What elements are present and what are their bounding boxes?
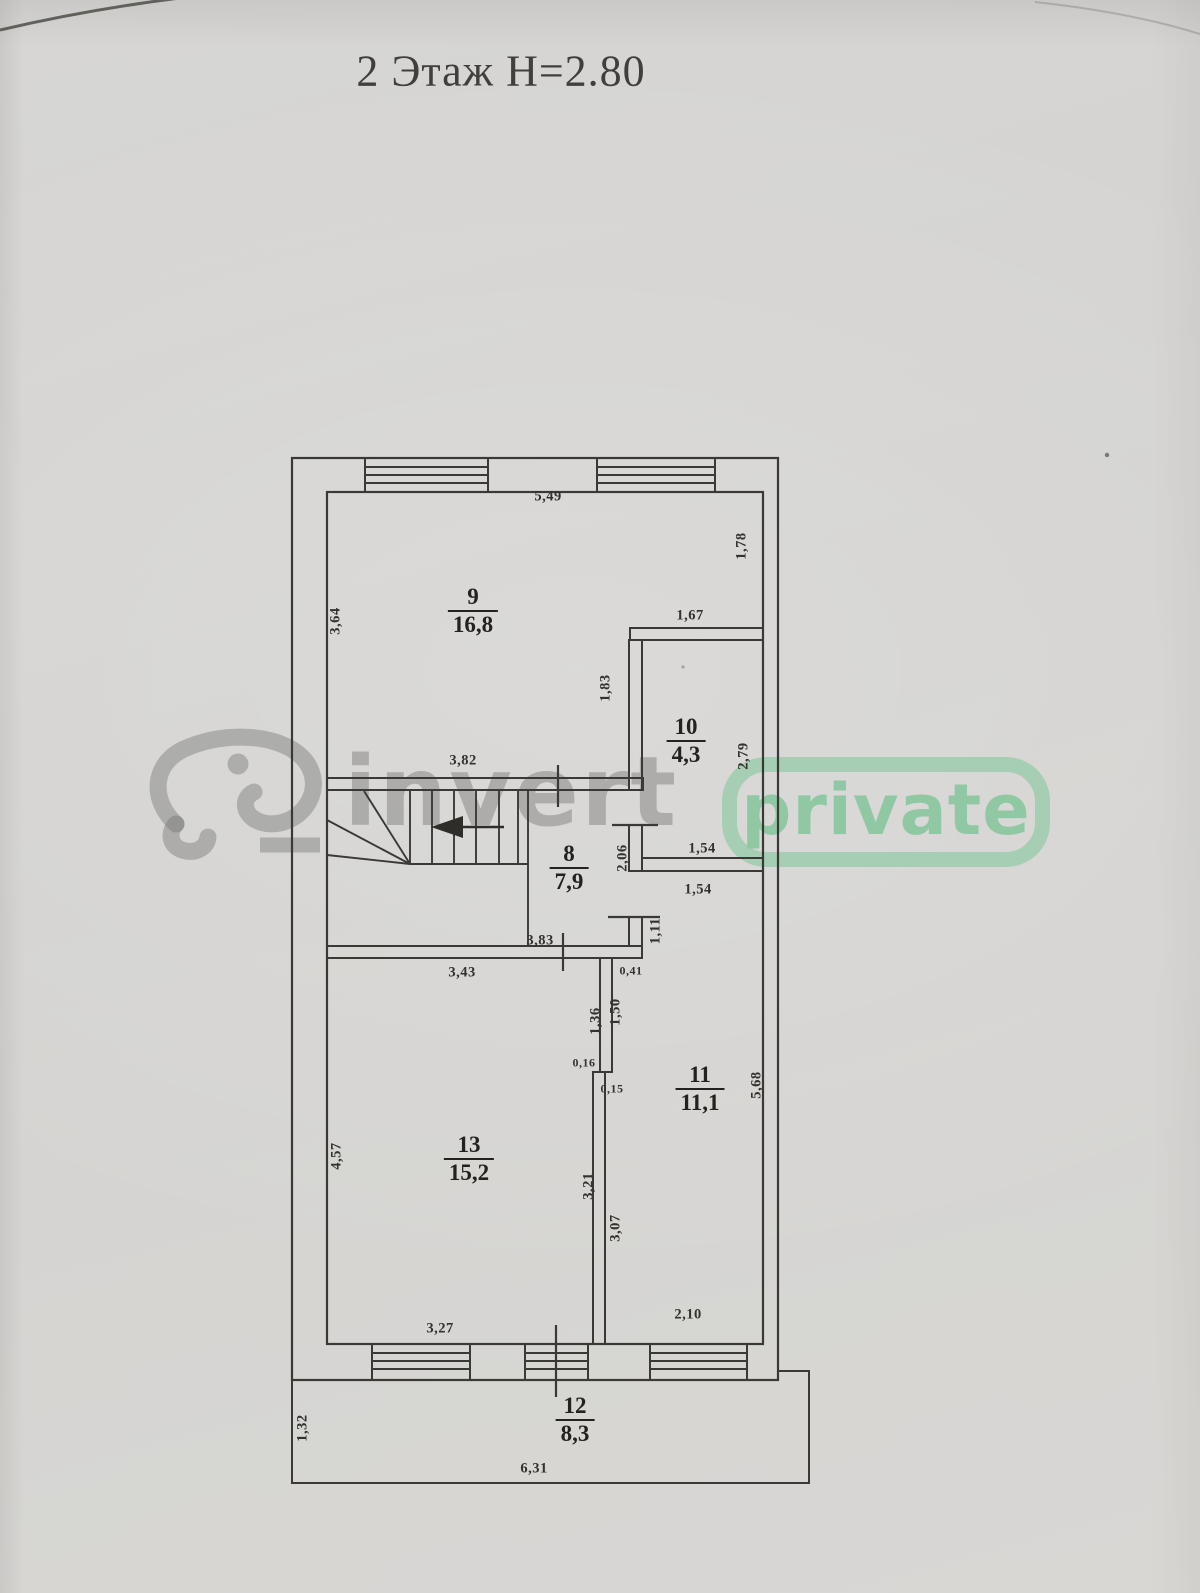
dim-label: 3,82 — [449, 753, 476, 770]
room-area: 15,2 — [444, 1158, 494, 1185]
stair-direction-arrow — [431, 816, 504, 838]
dim-label: 3,21 — [581, 1172, 598, 1199]
dim-label: 1,11 — [648, 918, 665, 945]
room-label-10: 10 4,3 — [667, 715, 706, 767]
room-number: 10 — [675, 715, 698, 740]
dim-label: 2,10 — [674, 1307, 701, 1324]
room-number: 11 — [689, 1063, 711, 1088]
dim-label: 1,54 — [684, 882, 711, 899]
scanned-floor-plan-page: invert private — [0, 0, 1200, 1593]
room-area: 16,8 — [448, 610, 498, 637]
dim-label: 0,41 — [620, 964, 643, 979]
dim-label: 0,16 — [573, 1056, 596, 1071]
dim-label: 0,15 — [601, 1082, 624, 1097]
room-label-12: 12 8,3 — [556, 1394, 595, 1446]
dim-label: 1,54 — [688, 841, 715, 858]
room-label-9: 9 16,8 — [448, 585, 498, 637]
dim-label: 1,50 — [608, 998, 625, 1025]
room-label-11: 11 11,1 — [676, 1063, 725, 1115]
dim-label: 1,67 — [676, 608, 703, 625]
room-number: 13 — [458, 1133, 481, 1158]
dim-label: 1,32 — [295, 1414, 312, 1441]
dim-label: 3,27 — [426, 1321, 453, 1338]
dim-label: 3,64 — [328, 607, 345, 634]
dim-label: 5,49 — [534, 489, 561, 506]
dim-label: 1,78 — [734, 532, 751, 559]
dim-label: 2,06 — [615, 844, 632, 871]
room-area: 11,1 — [676, 1088, 725, 1115]
dim-label: 1,83 — [598, 674, 615, 701]
top-window-band — [365, 458, 715, 492]
room-number: 8 — [563, 842, 575, 867]
room-area: 4,3 — [667, 740, 706, 767]
bottom-window-band — [372, 1344, 747, 1380]
floor-plan-drawing — [0, 0, 1200, 1593]
dim-label: 3,07 — [608, 1214, 625, 1241]
terrace-outline — [292, 1371, 809, 1483]
dim-label: 5,68 — [749, 1071, 766, 1098]
floor-title: 2 Этаж Н=2.80 — [356, 46, 645, 97]
room-label-13: 13 15,2 — [444, 1133, 494, 1185]
dim-label: 3,83 — [526, 933, 553, 950]
staircase — [327, 790, 528, 946]
room-number: 9 — [467, 585, 479, 610]
room-number: 12 — [564, 1394, 587, 1419]
dim-label: 2,79 — [736, 742, 753, 769]
room-label-8: 8 7,9 — [550, 842, 589, 894]
exterior-walls — [292, 458, 778, 1380]
dim-label: 3,43 — [448, 965, 475, 982]
room-area: 8,3 — [556, 1419, 595, 1446]
dim-label: 1,36 — [588, 1007, 605, 1034]
dim-label: 4,57 — [329, 1142, 346, 1169]
dim-label: 6,31 — [520, 1461, 547, 1478]
room-area: 7,9 — [550, 867, 589, 894]
